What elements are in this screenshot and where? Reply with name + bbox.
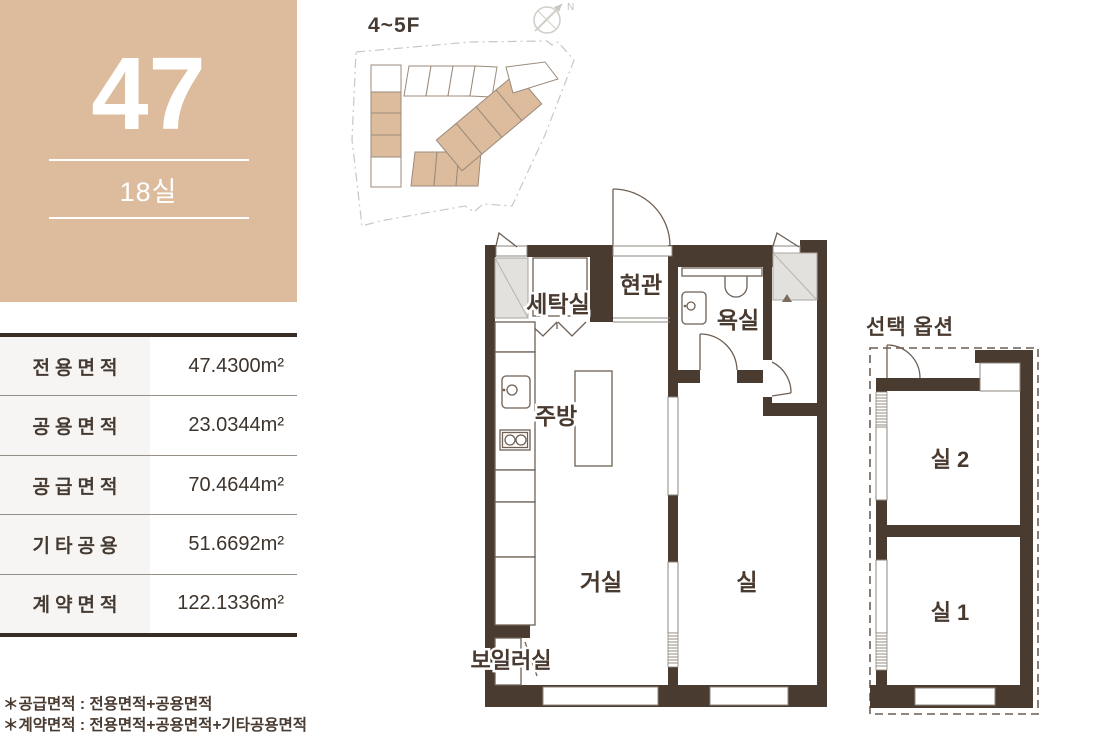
unit-number: 47 <box>91 42 206 145</box>
room-label-bathroom: 욕실 <box>717 307 759 333</box>
option-plan: 선택 옵션 실 2 실 1 <box>858 308 1054 730</box>
compass-icon: N <box>534 2 574 33</box>
unit-badge: 47 18실 <box>0 0 297 302</box>
room-label-room: 실 <box>736 569 757 595</box>
main-floor-plan: 세탁실 현관 욕실 주방 거실 실 보일러실 <box>455 178 847 712</box>
option-plan-title: 선택 옵션 <box>866 316 954 339</box>
room-label-room2: 실 2 <box>931 447 970 472</box>
room-label-room1: 실 1 <box>931 600 970 625</box>
footnotes: ＊공급면적 : 전용면적+공용면적 ＊계약면적 : 전용면적+공용면적+기타공용… <box>3 694 307 736</box>
table-row: 기타공용 51.6692m² <box>0 514 297 573</box>
room-label-kitchen: 주방 <box>535 403 577 429</box>
option-walls <box>870 350 1033 708</box>
area-row-label: 계약면적 <box>0 575 150 633</box>
room-label-laundry: 세탁실 <box>526 291 589 317</box>
area-row-value: 122.1336m² <box>150 575 297 633</box>
area-row-label: 공급면적 <box>0 456 150 514</box>
option-door-swing <box>887 345 920 378</box>
table-row: 공급면적 70.4644m² <box>0 455 297 514</box>
area-row-value: 47.4300m² <box>150 337 297 395</box>
room-label-boiler: 보일러실 <box>471 648 552 673</box>
table-row: 공용면적 23.0344m² <box>0 395 297 454</box>
area-row-label: 공용면적 <box>0 396 150 454</box>
area-row-label: 전용면적 <box>0 337 150 395</box>
badge-divider-bottom <box>49 217 249 219</box>
area-row-value: 51.6692m² <box>150 515 297 573</box>
table-row: 계약면적 122.1336m² <box>0 574 297 633</box>
floor-range-label: 4~5F <box>368 14 420 37</box>
footnote-supply-area: ＊공급면적 : 전용면적+공용면적 <box>3 694 307 715</box>
table-row: 전용면적 47.4300m² <box>0 337 297 395</box>
area-row-value: 23.0344m² <box>150 396 297 454</box>
area-row-label: 기타공용 <box>0 515 150 573</box>
footnote-contract-area: ＊계약면적 : 전용면적+공용면적+기타공용면적 <box>3 715 307 736</box>
area-row-value: 70.4644m² <box>150 456 297 514</box>
compass-north-label: N <box>567 2 574 13</box>
room-label-living: 거실 <box>580 569 622 595</box>
room-label-entrance: 현관 <box>620 272 662 298</box>
area-table: 전용면적 47.4300m² 공용면적 23.0344m² 공급면적 70.46… <box>0 333 297 637</box>
floor-plan-page: 47 18실 전용면적 47.4300m² 공용면적 23.0344m² 공급면… <box>0 0 1100 749</box>
unit-room-count: 18실 <box>120 161 178 217</box>
